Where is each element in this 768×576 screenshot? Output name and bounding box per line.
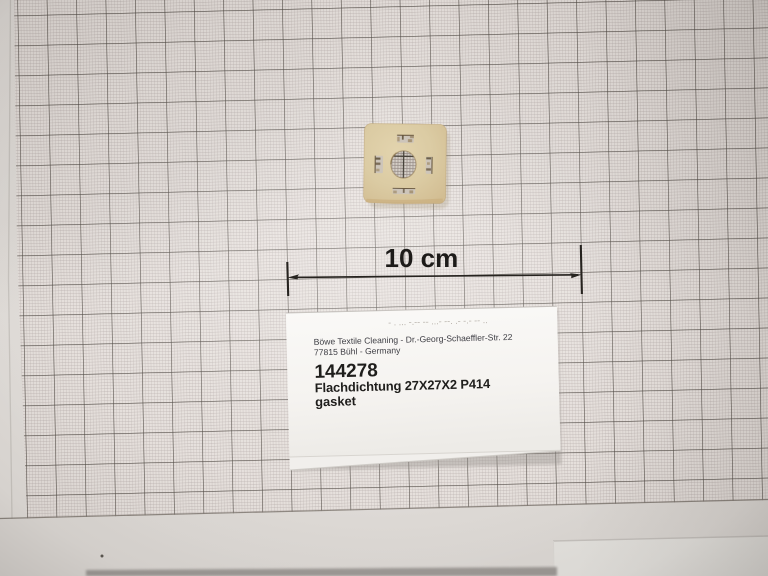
svg-text:gasket: gasket bbox=[315, 393, 357, 409]
svg-text:10 cm: 10 cm bbox=[385, 243, 459, 273]
